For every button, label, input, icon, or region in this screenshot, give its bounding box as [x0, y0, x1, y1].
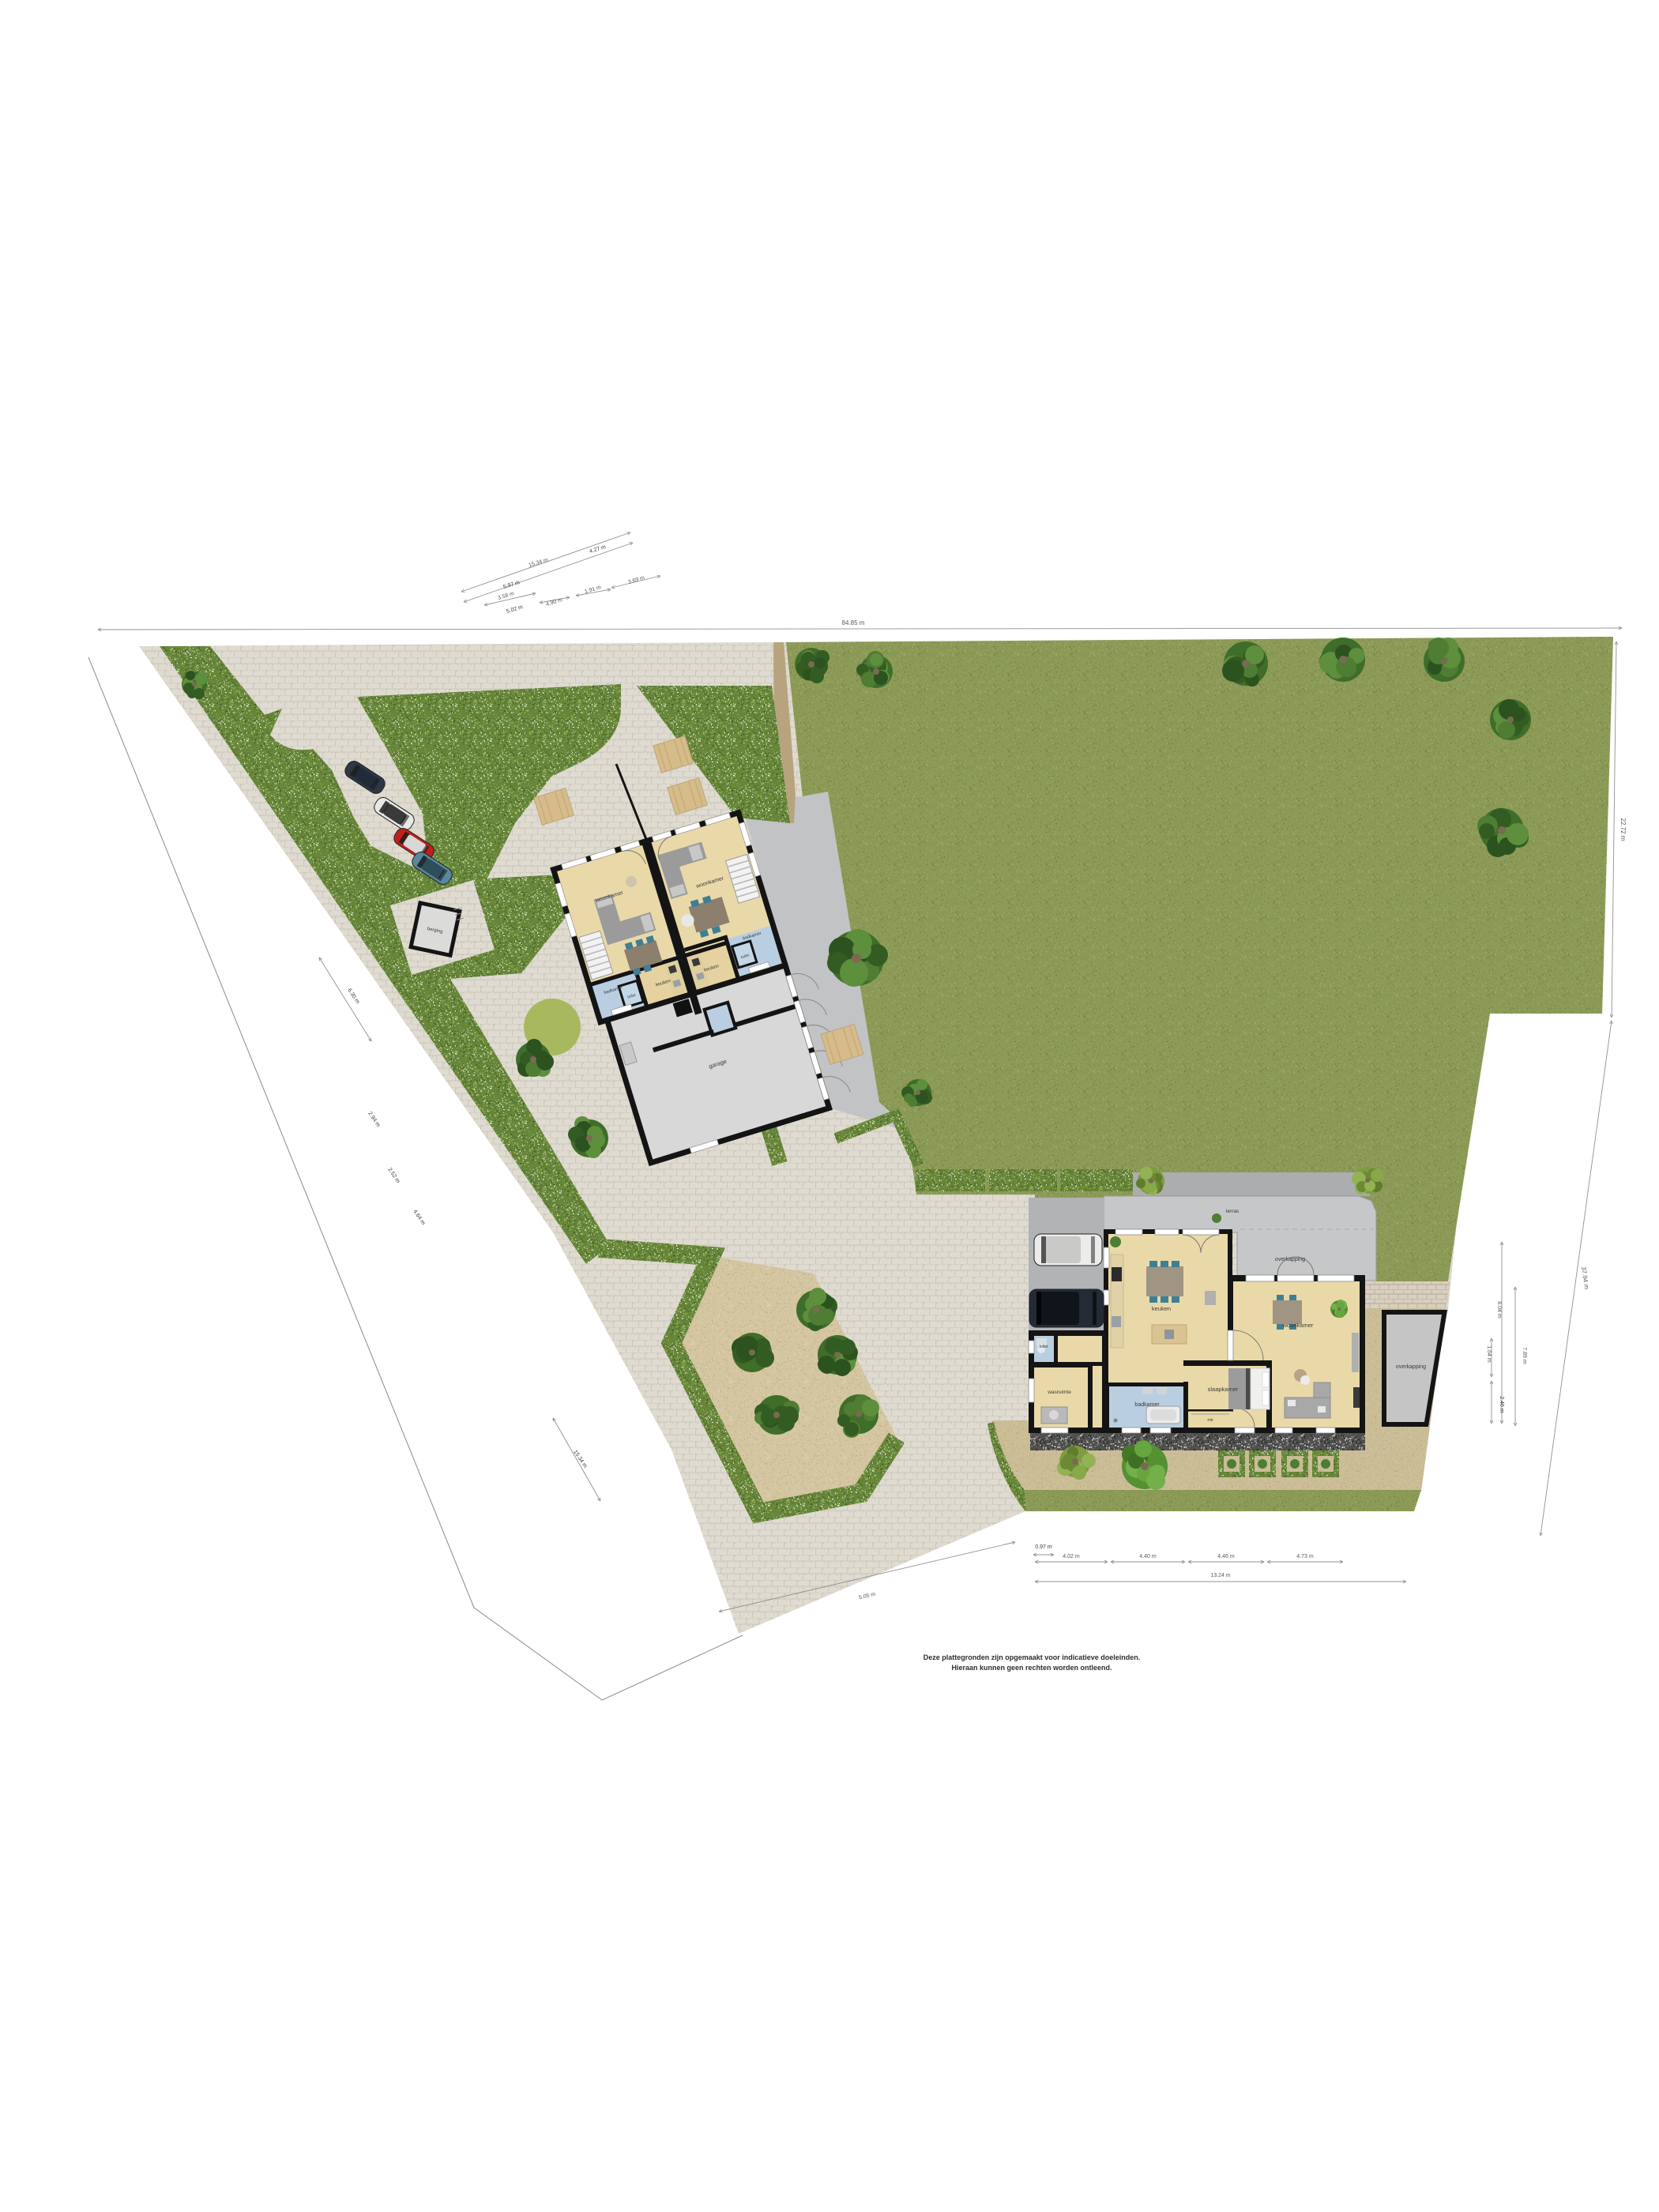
- svg-text:8.04 m: 8.04 m: [1496, 1301, 1502, 1319]
- svg-text:slaapkamer: slaapkamer: [1208, 1386, 1239, 1393]
- svg-text:2.46 m: 2.46 m: [1499, 1396, 1504, 1413]
- svg-text:overkapping: overkapping: [1275, 1257, 1305, 1262]
- svg-text:woonkamer: woonkamer: [1282, 1322, 1314, 1329]
- svg-text:mk: mk: [1207, 1418, 1213, 1423]
- svg-text:1.64 m: 1.64 m: [1486, 1345, 1492, 1363]
- svg-text:Deze plattegronden zijn opgema: Deze plattegronden zijn opgemaakt voor i…: [924, 1653, 1141, 1661]
- svg-text:terras: terras: [1226, 1209, 1240, 1214]
- svg-text:4.02 m: 4.02 m: [1063, 1554, 1080, 1559]
- svg-text:toilet: toilet: [1040, 1345, 1048, 1349]
- svg-text:badkamer: badkamer: [1134, 1402, 1160, 1408]
- svg-text:4.40 m: 4.40 m: [1139, 1554, 1157, 1559]
- svg-text:Hieraan kunnen geen rechten wo: Hieraan kunnen geen rechten worden ontle…: [951, 1664, 1112, 1672]
- svg-text:4.73 m: 4.73 m: [1296, 1554, 1314, 1559]
- svg-text:13.24 m: 13.24 m: [1210, 1573, 1230, 1578]
- svg-text:keuken: keuken: [1152, 1305, 1171, 1312]
- svg-text:84.85 m: 84.85 m: [842, 619, 865, 626]
- svg-text:0.97 m: 0.97 m: [1035, 1544, 1052, 1550]
- svg-text:overkapping: overkapping: [1396, 1364, 1426, 1370]
- svg-text:22.72 m: 22.72 m: [1619, 818, 1627, 841]
- svg-text:wasruimte: wasruimte: [1047, 1390, 1071, 1395]
- svg-text:7.89 m: 7.89 m: [1522, 1347, 1527, 1364]
- svg-text:4.46 m: 4.46 m: [1217, 1554, 1235, 1559]
